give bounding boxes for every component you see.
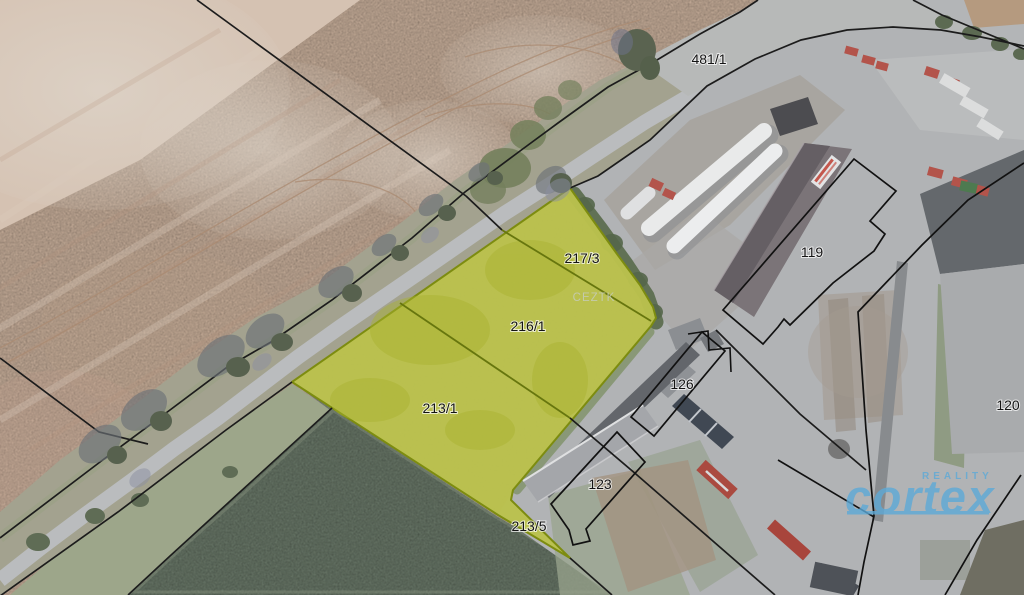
svg-text:cortex: cortex [845,470,995,523]
svg-text:123: 123 [588,476,612,492]
svg-text:126: 126 [670,376,694,392]
svg-text:481/1: 481/1 [691,51,726,67]
svg-text:120: 120 [996,397,1020,413]
svg-text:217/3: 217/3 [564,250,599,266]
svg-text:216/1: 216/1 [510,318,545,334]
svg-text:213/5: 213/5 [511,518,546,534]
svg-text:CEZTK: CEZTK [573,292,616,304]
svg-text:119: 119 [801,244,824,260]
svg-text:213/1: 213/1 [422,400,457,416]
